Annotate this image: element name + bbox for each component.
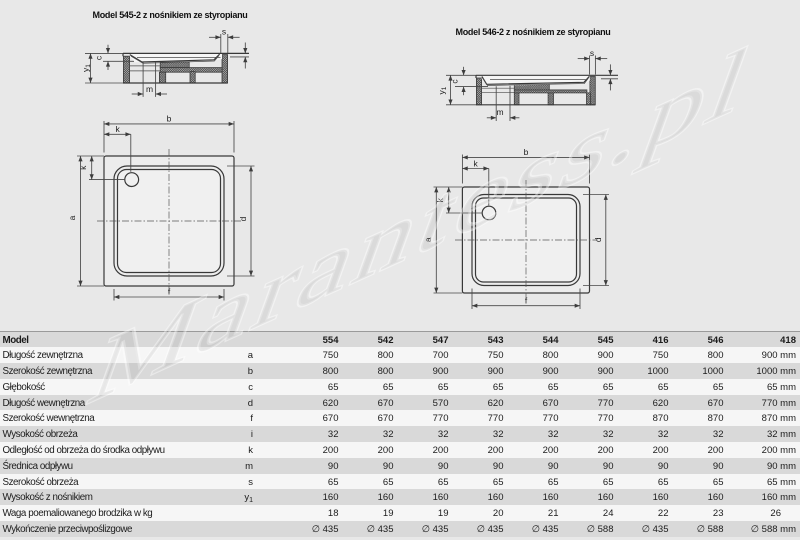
- svg-text:k: k: [473, 158, 478, 168]
- svg-text:m: m: [146, 84, 153, 94]
- svg-text:k: k: [78, 165, 88, 170]
- svg-text:c: c: [450, 79, 460, 84]
- svg-text:y1: y1: [436, 86, 448, 94]
- svg-text:k: k: [115, 124, 120, 134]
- svg-text:d: d: [238, 216, 248, 221]
- svg-text:s: s: [222, 27, 226, 37]
- svg-text:a: a: [423, 237, 433, 242]
- svg-text:d: d: [593, 237, 603, 242]
- svg-text:a: a: [67, 215, 77, 220]
- svg-text:c: c: [94, 55, 104, 60]
- svg-text:Model 546-2 z nośnikiem ze sty: Model 546-2 z nośnikiem ze styropianu: [456, 27, 611, 37]
- svg-text:m: m: [496, 107, 503, 117]
- svg-text:s: s: [590, 48, 594, 58]
- svg-text:f: f: [525, 295, 528, 305]
- svg-text:b: b: [167, 113, 172, 123]
- svg-text:y1: y1: [81, 64, 93, 72]
- svg-text:b: b: [524, 147, 529, 157]
- svg-text:Model 545-2 z nośnikiem ze sty: Model 545-2 z nośnikiem ze styropianu: [93, 10, 248, 20]
- svg-text:f: f: [168, 287, 171, 297]
